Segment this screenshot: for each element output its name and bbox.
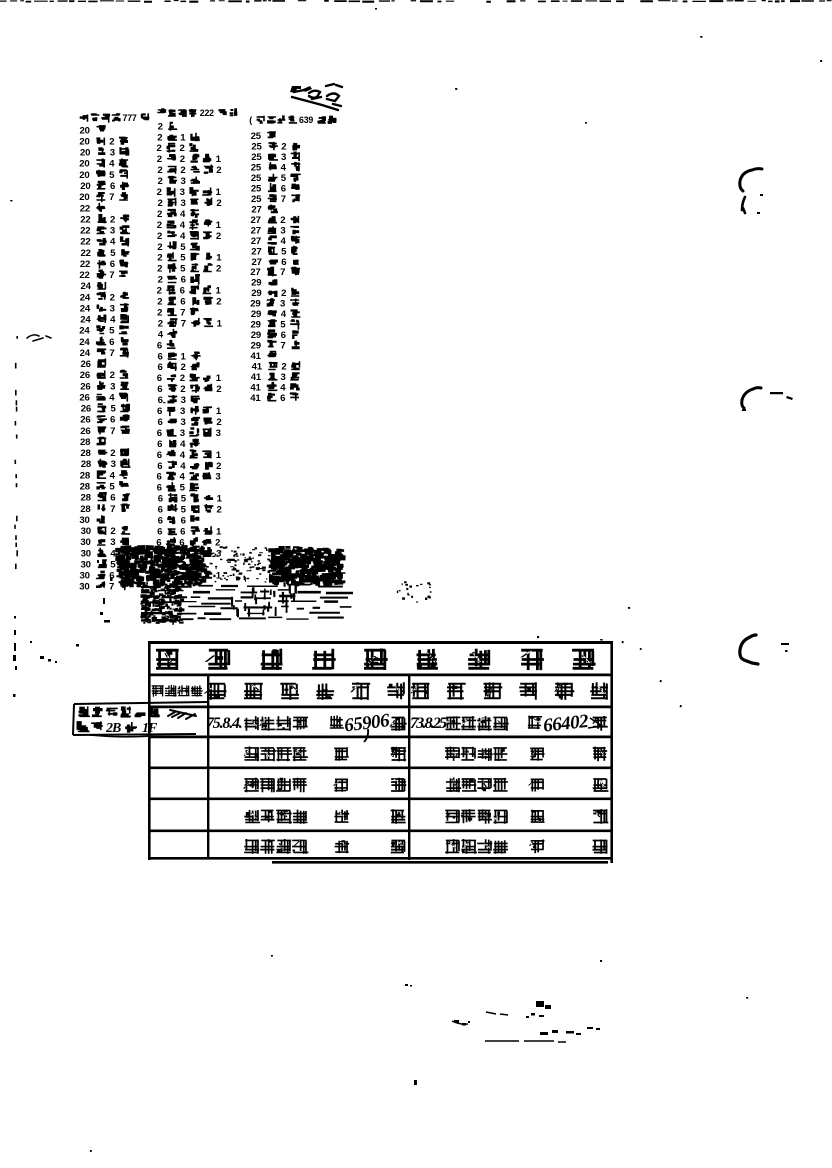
svg-text:25: 25 [251, 173, 262, 184]
svg-text:3: 3 [281, 152, 286, 163]
svg-text:4: 4 [158, 329, 164, 340]
svg-text:2: 2 [157, 154, 162, 165]
svg-text:7: 7 [281, 194, 286, 205]
svg-text:4: 4 [110, 237, 116, 248]
svg-text:3: 3 [110, 148, 115, 159]
svg-text:2: 2 [281, 362, 286, 373]
svg-text:2: 2 [180, 373, 185, 384]
svg-text:2B: 2B [105, 721, 121, 736]
svg-text:5: 5 [280, 320, 286, 331]
svg-text:7: 7 [109, 270, 114, 281]
svg-text:6: 6 [157, 428, 162, 439]
svg-text:7: 7 [110, 426, 115, 437]
svg-text:2: 2 [157, 286, 162, 297]
svg-text:4: 4 [281, 309, 287, 320]
svg-text:29: 29 [251, 320, 261, 331]
svg-text:1: 1 [216, 373, 222, 384]
svg-text:2: 2 [157, 187, 162, 198]
svg-text:22: 22 [80, 214, 90, 225]
svg-text:73.8.25: 73.8.25 [410, 715, 447, 732]
svg-text:25: 25 [251, 152, 262, 163]
svg-text:5: 5 [109, 170, 115, 181]
svg-text:7: 7 [109, 192, 114, 203]
svg-text:30: 30 [79, 515, 89, 526]
svg-text:3: 3 [280, 299, 285, 310]
svg-text:6: 6 [158, 516, 163, 527]
svg-text:5: 5 [180, 264, 186, 275]
svg-text:7: 7 [110, 504, 115, 515]
svg-text:2: 2 [157, 165, 162, 176]
svg-text:1: 1 [216, 253, 222, 264]
svg-text:27: 27 [251, 236, 261, 247]
svg-text:2: 2 [158, 318, 163, 329]
svg-text:1: 1 [217, 494, 223, 505]
svg-text:6: 6 [280, 393, 285, 404]
svg-text:2: 2 [216, 165, 221, 176]
svg-text:24: 24 [80, 315, 91, 326]
svg-text:6: 6 [181, 275, 186, 286]
svg-text:3: 3 [280, 225, 285, 236]
svg-text:6: 6 [158, 417, 163, 428]
svg-text:3: 3 [110, 381, 115, 392]
svg-text:6: 6 [158, 395, 163, 406]
svg-text:5: 5 [109, 482, 115, 493]
svg-text:1: 1 [216, 220, 222, 231]
svg-text:2: 2 [157, 231, 162, 242]
svg-text:2: 2 [157, 209, 162, 220]
svg-text:3: 3 [181, 417, 186, 428]
svg-text:4: 4 [180, 472, 186, 483]
svg-text:65906: 65906 [343, 710, 391, 736]
svg-text:6: 6 [110, 259, 115, 270]
svg-text:2: 2 [157, 242, 162, 253]
svg-text:2: 2 [158, 275, 163, 286]
svg-text:4: 4 [180, 220, 186, 231]
svg-text:27: 27 [251, 215, 261, 226]
svg-text:3: 3 [111, 459, 116, 470]
svg-text:4: 4 [180, 231, 186, 242]
svg-text:2: 2 [215, 537, 220, 548]
svg-text:27: 27 [251, 204, 261, 215]
svg-text:2: 2 [110, 214, 115, 225]
svg-text:29: 29 [250, 299, 260, 310]
svg-text:24: 24 [79, 337, 90, 348]
svg-text:6: 6 [158, 494, 163, 505]
svg-text:2: 2 [158, 176, 163, 187]
svg-text:28: 28 [80, 470, 91, 481]
svg-text:22: 22 [81, 248, 91, 259]
svg-text:1: 1 [216, 286, 222, 297]
svg-text:6: 6 [180, 527, 185, 538]
svg-text:30: 30 [81, 526, 91, 537]
svg-text:2: 2 [157, 220, 162, 231]
svg-text:7: 7 [180, 308, 185, 319]
svg-text:20: 20 [79, 192, 89, 203]
svg-text:4: 4 [180, 461, 186, 472]
svg-text:5: 5 [180, 242, 186, 253]
svg-text:2: 2 [110, 292, 115, 303]
svg-text:28: 28 [81, 493, 92, 504]
svg-text:29: 29 [251, 341, 261, 352]
svg-text:4: 4 [109, 159, 115, 170]
svg-text:2: 2 [281, 288, 286, 299]
svg-text:5: 5 [281, 173, 287, 184]
svg-text:20: 20 [79, 137, 89, 148]
svg-text:27: 27 [251, 246, 261, 257]
svg-text:2: 2 [157, 308, 162, 319]
svg-text:1: 1 [216, 450, 222, 461]
svg-text:2: 2 [110, 370, 115, 381]
svg-text:2: 2 [280, 215, 285, 226]
svg-text:5: 5 [111, 404, 117, 415]
svg-text:5: 5 [181, 494, 187, 505]
svg-text:22: 22 [80, 226, 90, 237]
svg-text:1: 1 [216, 406, 222, 417]
svg-text:6: 6 [157, 472, 162, 483]
svg-text:27: 27 [252, 257, 262, 268]
svg-text:1: 1 [216, 527, 222, 538]
svg-text:7: 7 [280, 341, 285, 352]
svg-text:24: 24 [80, 348, 91, 359]
svg-text:2: 2 [157, 264, 162, 275]
svg-text:20: 20 [80, 125, 90, 136]
svg-text:25: 25 [251, 131, 262, 142]
svg-text:24: 24 [80, 303, 91, 314]
svg-text:6: 6 [180, 297, 185, 308]
svg-text:22: 22 [80, 259, 90, 270]
svg-text:6: 6 [157, 483, 162, 494]
svg-text:6: 6 [180, 286, 185, 297]
svg-text:5: 5 [281, 246, 287, 257]
svg-text:2: 2 [109, 137, 114, 148]
svg-text:1: 1 [181, 351, 187, 362]
svg-text:(: ( [249, 115, 252, 125]
svg-text:5: 5 [181, 505, 187, 516]
svg-text:6: 6 [281, 330, 286, 341]
svg-text:41: 41 [250, 382, 261, 393]
svg-text:26: 26 [80, 370, 90, 381]
svg-text:22: 22 [80, 237, 90, 248]
svg-text:6: 6 [157, 373, 162, 384]
svg-text:5: 5 [109, 326, 115, 337]
svg-text:2: 2 [157, 253, 162, 264]
svg-text:2: 2 [158, 121, 163, 132]
svg-text:3: 3 [110, 537, 115, 548]
svg-text:2: 2 [216, 417, 221, 428]
svg-text:30: 30 [80, 571, 90, 582]
svg-text:6: 6 [281, 184, 286, 195]
svg-text:26: 26 [80, 415, 90, 426]
svg-text:24: 24 [80, 292, 91, 303]
svg-text:29: 29 [251, 309, 261, 320]
svg-text:28: 28 [80, 504, 91, 515]
svg-text:4: 4 [281, 236, 287, 247]
svg-text:1: 1 [180, 132, 186, 143]
svg-text:2: 2 [216, 297, 221, 308]
svg-text:20: 20 [79, 170, 89, 181]
svg-text:2: 2 [281, 142, 286, 153]
svg-text:30: 30 [79, 582, 89, 593]
svg-text:25: 25 [251, 142, 262, 153]
svg-text:3: 3 [181, 176, 186, 187]
svg-text:25: 25 [251, 194, 262, 205]
svg-text:29: 29 [251, 330, 261, 341]
svg-text:6: 6 [110, 493, 115, 504]
svg-text:4: 4 [110, 470, 116, 481]
svg-text:3: 3 [180, 406, 185, 417]
svg-text:29: 29 [251, 288, 261, 299]
svg-text:41: 41 [252, 362, 263, 373]
svg-text:26: 26 [80, 381, 90, 392]
svg-text:26: 26 [79, 393, 89, 404]
svg-text:3: 3 [215, 472, 220, 483]
svg-text:26: 26 [81, 359, 91, 370]
svg-text:6: 6 [157, 406, 162, 417]
svg-text:3: 3 [110, 226, 115, 237]
svg-text:26: 26 [80, 426, 90, 437]
svg-text:2: 2 [157, 132, 162, 143]
svg-text:2: 2 [180, 384, 185, 395]
svg-text:4: 4 [110, 315, 116, 326]
svg-text:4: 4 [180, 450, 186, 461]
svg-text:41: 41 [251, 351, 262, 362]
svg-text:2: 2 [157, 297, 162, 308]
svg-text:28: 28 [81, 459, 92, 470]
svg-text:3: 3 [216, 548, 221, 559]
svg-text:20: 20 [80, 148, 90, 159]
svg-text:28: 28 [80, 437, 91, 448]
svg-text:4: 4 [180, 209, 186, 220]
svg-text:5: 5 [180, 253, 186, 264]
svg-text:3: 3 [216, 428, 221, 439]
svg-text:2: 2 [216, 264, 221, 275]
svg-text:20: 20 [79, 159, 89, 170]
svg-text:4: 4 [281, 163, 287, 174]
svg-text:2: 2 [217, 505, 222, 516]
svg-text:3: 3 [180, 428, 185, 439]
svg-text:2: 2 [180, 154, 185, 165]
svg-text:30: 30 [80, 537, 90, 548]
svg-text:24: 24 [81, 281, 92, 292]
svg-text:22: 22 [79, 270, 89, 281]
svg-text:41: 41 [251, 372, 262, 383]
svg-text:3: 3 [180, 187, 185, 198]
svg-text:2: 2 [158, 198, 163, 209]
svg-text:2: 2 [180, 143, 185, 154]
svg-text:1F: 1F [142, 721, 158, 736]
svg-text:30: 30 [81, 548, 91, 559]
svg-text:3: 3 [181, 395, 186, 406]
svg-text:777: 777 [123, 113, 137, 123]
svg-text:2: 2 [110, 448, 115, 459]
svg-text:7: 7 [109, 582, 114, 593]
svg-text:222: 222 [200, 108, 214, 118]
svg-text:6: 6 [157, 340, 162, 351]
svg-text:4: 4 [280, 382, 286, 393]
svg-text:2: 2 [216, 384, 221, 395]
svg-text:28: 28 [80, 448, 91, 459]
svg-text:6: 6 [157, 450, 162, 461]
svg-text:2: 2 [110, 526, 115, 537]
svg-text:4: 4 [180, 439, 186, 450]
svg-text:2: 2 [157, 143, 162, 154]
svg-text:6: 6 [181, 516, 186, 527]
svg-text:2: 2 [180, 165, 185, 176]
svg-text:7: 7 [181, 318, 186, 329]
svg-text:6: 6 [157, 527, 162, 538]
svg-text:6: 6 [110, 181, 115, 192]
svg-text:5: 5 [110, 248, 116, 259]
svg-text:28: 28 [80, 482, 91, 493]
svg-text:27: 27 [250, 267, 260, 278]
svg-text:29: 29 [251, 278, 261, 289]
svg-text:7: 7 [109, 348, 114, 359]
svg-text:66402: 66402 [542, 711, 590, 737]
svg-text:6: 6 [157, 439, 162, 450]
svg-text:6: 6 [158, 362, 163, 373]
svg-text:26: 26 [81, 404, 91, 415]
svg-text:2: 2 [216, 461, 221, 472]
svg-text:3: 3 [110, 303, 115, 314]
svg-text:6: 6 [157, 461, 162, 472]
svg-text:22: 22 [80, 203, 90, 214]
svg-text:6: 6 [281, 257, 286, 268]
svg-text:27: 27 [251, 225, 261, 236]
svg-text:7: 7 [280, 267, 285, 278]
svg-text:25: 25 [251, 163, 262, 174]
svg-text:25: 25 [251, 184, 262, 195]
svg-text:75.8.4.: 75.8.4. [206, 715, 242, 732]
svg-text:6: 6 [157, 384, 162, 395]
svg-text:6: 6 [158, 351, 163, 362]
svg-text:1: 1 [216, 154, 222, 165]
svg-text:1: 1 [216, 187, 222, 198]
svg-text:24: 24 [79, 326, 90, 337]
svg-text:41: 41 [250, 393, 261, 404]
svg-text:30: 30 [81, 559, 91, 570]
svg-text:639: 639 [299, 115, 313, 125]
svg-text:2: 2 [181, 362, 186, 373]
svg-text:3: 3 [281, 372, 286, 383]
svg-text:5: 5 [180, 483, 186, 494]
svg-text:2: 2 [216, 198, 221, 209]
svg-text:2: 2 [216, 231, 221, 242]
svg-text:1: 1 [217, 318, 223, 329]
svg-text:6: 6 [109, 337, 114, 348]
svg-text:6: 6 [158, 505, 163, 516]
svg-text:20: 20 [80, 181, 90, 192]
svg-text:6: 6 [110, 415, 115, 426]
svg-text:3: 3 [181, 198, 186, 209]
svg-text:4: 4 [109, 393, 115, 404]
